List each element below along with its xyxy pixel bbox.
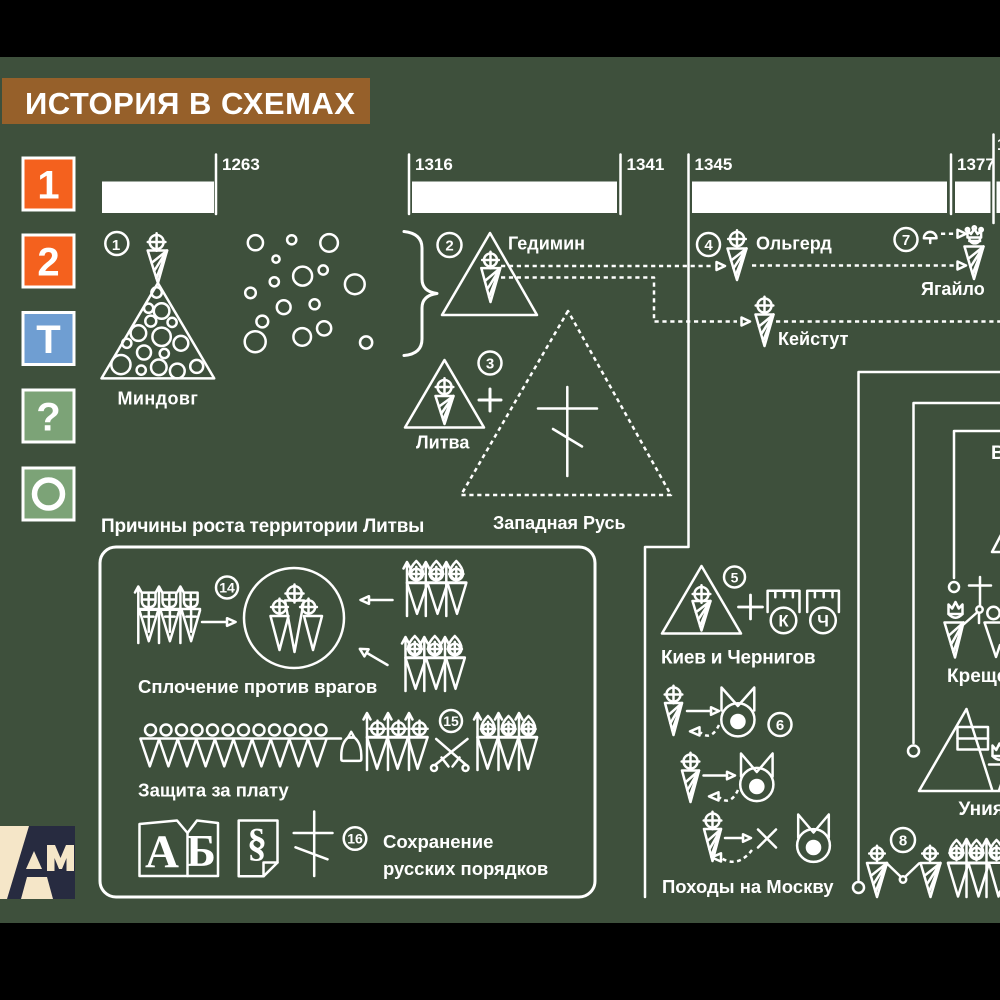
svg-text:Защита за плату: Защита за плату [138, 780, 289, 801]
svg-text:Крещение Литвы: Крещение Литвы [947, 666, 1000, 687]
svg-text:Сохранение: Сохранение [383, 831, 493, 852]
svg-text:5: 5 [731, 570, 739, 586]
svg-text:Миндовг: Миндовг [118, 389, 199, 409]
svg-text:К: К [778, 613, 789, 631]
svg-text:ИСТОРИЯ В СХЕМАХ: ИСТОРИЯ В СХЕМАХ [25, 86, 355, 121]
svg-text:Причины роста территории Литвы: Причины роста территории Литвы [101, 516, 424, 537]
svg-text:2: 2 [445, 238, 453, 255]
svg-text:1316: 1316 [415, 155, 453, 174]
svg-text:Походы на Москву: Походы на Москву [662, 876, 834, 897]
svg-text:15: 15 [443, 713, 459, 729]
svg-text:Западная Русь: Западная Русь [493, 513, 626, 533]
svg-text:1: 1 [112, 237, 120, 254]
svg-text:Ч: Ч [817, 613, 829, 631]
svg-text:Уния с Польшей: Уния с Польшей [959, 799, 1000, 820]
svg-text:§: § [247, 820, 267, 865]
svg-text:4: 4 [704, 237, 713, 254]
svg-text:А: А [145, 826, 179, 878]
svg-text:1377: 1377 [957, 155, 995, 174]
svg-text:Б: Б [186, 826, 216, 876]
svg-text:3: 3 [486, 356, 494, 373]
svg-text:7: 7 [902, 232, 910, 249]
svg-text:?: ? [36, 396, 60, 440]
svg-text:6: 6 [776, 717, 784, 734]
svg-text:Литва: Литва [416, 433, 470, 453]
svg-text:Т: Т [36, 318, 60, 362]
svg-text:2: 2 [37, 241, 59, 285]
svg-text:русских порядков: русских порядков [383, 858, 548, 879]
svg-text:Ягайло: Ягайло [921, 279, 985, 299]
svg-text:Киев и Чернигов: Киев и Чернигов [661, 648, 815, 669]
svg-text:1263: 1263 [222, 155, 260, 174]
svg-text:Ольгерд: Ольгерд [756, 234, 832, 254]
svg-text:1345: 1345 [695, 155, 733, 174]
svg-text:14: 14 [219, 580, 235, 596]
svg-text:Сплочение против врагов: Сплочение против врагов [138, 676, 377, 697]
svg-text:16: 16 [347, 831, 363, 847]
svg-text:1: 1 [37, 164, 59, 208]
svg-text:1341: 1341 [627, 155, 665, 174]
svg-text:Кейстут: Кейстут [778, 329, 849, 349]
svg-text:Витовт: Витовт [991, 443, 1000, 464]
svg-text:Гедимин: Гедимин [508, 234, 585, 254]
svg-text:8: 8 [899, 833, 907, 850]
